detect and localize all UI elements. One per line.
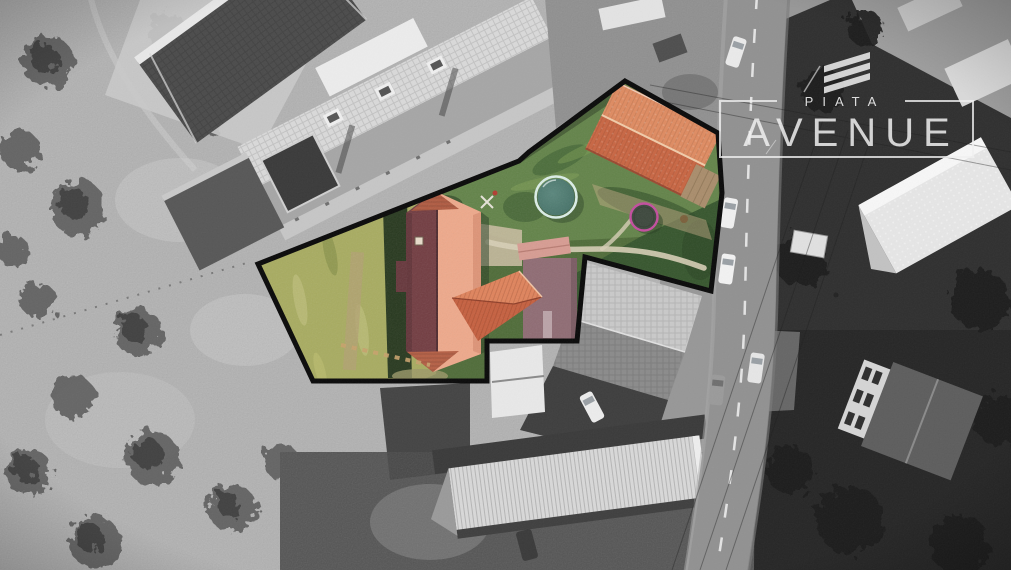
logo-title: AVENUE [743,111,959,155]
vignette [0,0,1011,570]
logo-subtitle: PIATA [805,94,886,109]
aerial-photo: PIATA AVENUE [0,0,1011,570]
